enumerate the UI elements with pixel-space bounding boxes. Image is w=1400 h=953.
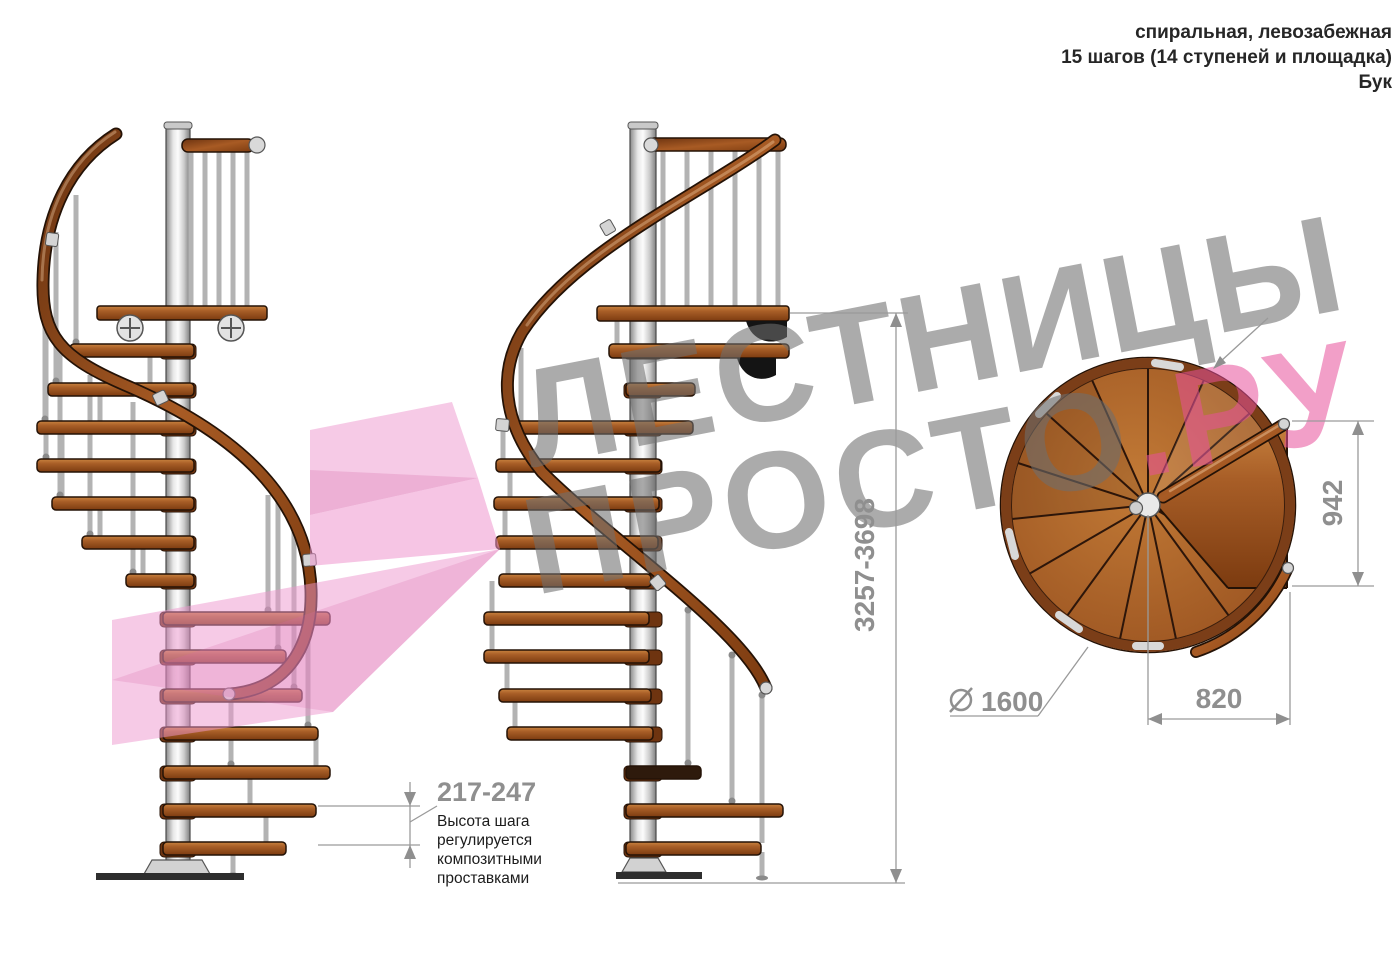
stair-type: спиральная, левозабежная [1061, 20, 1392, 45]
diameter-icon [950, 688, 972, 712]
dim-landing-depth: 820 [1196, 683, 1243, 714]
note-line: композитными [437, 850, 542, 869]
title-block: спиральная, левозабежная 15 шагов (14 ст… [1061, 20, 1392, 95]
stair-material: Бук [1061, 70, 1392, 95]
note-line: регулируется [437, 831, 542, 850]
note-line: проставками [437, 869, 542, 888]
dimension-annotations: 3257-3698 217-247 942 820 1600 [0, 0, 1400, 953]
dimension-arrows [404, 313, 1364, 883]
note-line: Высота шага [437, 812, 542, 831]
dim-step-height: 217-247 [437, 777, 536, 807]
stair-steps-count: 15 шагов (14 ступеней и площадка) [1061, 45, 1392, 70]
dim-landing-width: 942 [1317, 480, 1348, 527]
step-height-note: Высота шага регулируется композитными пр… [437, 812, 542, 888]
dim-total-height: 3257-3698 [849, 498, 880, 632]
dim-diameter: 1600 [981, 686, 1043, 717]
drawing-sheet: ЛЕСТНИЦЫ ПРОСТО.РУ [0, 0, 1400, 953]
